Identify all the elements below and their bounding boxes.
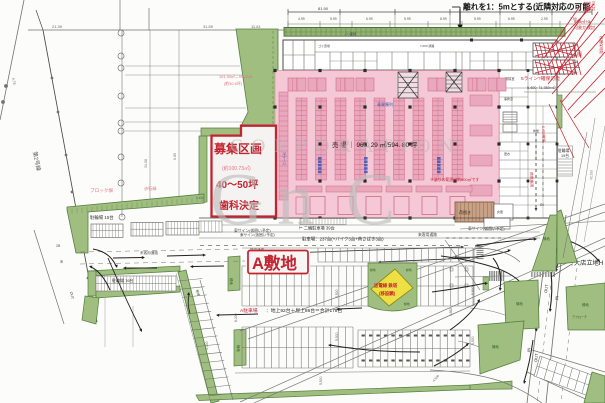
svg-text:荷捌車両: 荷捌車両 xyxy=(529,172,535,188)
svg-text:緑地: 緑地 xyxy=(582,302,589,307)
svg-text:荷捌き: 荷捌き xyxy=(459,209,471,215)
svg-text:2.99: 2.99 xyxy=(541,17,548,21)
svg-text:4,500: 4,500 xyxy=(449,308,453,316)
svg-text:5.99: 5.99 xyxy=(474,17,481,21)
svg-text:緑地: 緑地 xyxy=(370,268,376,272)
svg-text:IN: IN xyxy=(526,347,531,352)
svg-text:6.85: 6.85 xyxy=(173,153,177,160)
svg-text:休憩: 休憩 xyxy=(533,128,539,133)
svg-text:5,400（1,350×4）: 5,400（1,350×4） xyxy=(527,85,558,90)
svg-text:核確保可能: 核確保可能 xyxy=(599,36,604,54)
svg-text:風除室: 風除室 xyxy=(505,76,515,81)
svg-text:5,500: 5,500 xyxy=(471,286,475,295)
svg-text:81.90: 81.90 xyxy=(318,6,329,11)
svg-text:12,150: 12,150 xyxy=(589,170,594,180)
svg-text:6.99: 6.99 xyxy=(508,17,515,21)
svg-text:離れを1：5mとする(近隣対応の可能: 離れを1：5mとする(近隣対応の可能 xyxy=(463,2,590,12)
svg-text:5.99: 5.99 xyxy=(330,17,337,21)
svg-text:来客用通路: 来客用通路 xyxy=(140,250,158,255)
svg-text:6,480: 6,480 xyxy=(196,196,204,200)
svg-text:更衣: 更衣 xyxy=(504,151,510,156)
svg-text:5,500: 5,500 xyxy=(471,336,475,345)
svg-text:緑地: 緑地 xyxy=(543,236,550,241)
svg-text:送電線 鉄塔: 送電線 鉄塔 xyxy=(373,282,398,289)
svg-text:2B: 2B xyxy=(56,244,61,248)
svg-text:7,000 通路: 7,000 通路 xyxy=(420,43,434,48)
svg-text:19台: 19台 xyxy=(561,153,569,158)
svg-text:5ライン?確保可能: 5ライン?確保可能 xyxy=(521,75,560,82)
svg-text:101.30㎡→99.20㎡: 101.30㎡→99.20㎡ xyxy=(219,74,252,79)
svg-text:緑地: 緑地 xyxy=(236,345,241,352)
svg-text:駐輪場 76台: 駐輪場 76台 xyxy=(112,277,134,283)
svg-text:事務室: 事務室 xyxy=(504,96,513,101)
svg-text:緑地: 緑地 xyxy=(406,268,412,272)
svg-text:A駐車場: A駐車場 xyxy=(240,307,258,314)
svg-text:対応可: 対応可 xyxy=(584,1,596,6)
svg-text:4.99: 4.99 xyxy=(298,17,305,21)
svg-text:ノリ面緑: ノリ面緑 xyxy=(344,31,356,36)
svg-text:青果陳列: 青果陳列 xyxy=(377,101,393,107)
svg-text:緑地: 緑地 xyxy=(492,344,499,349)
svg-text:(約30.6坪): (約30.6坪) xyxy=(224,81,243,86)
svg-text:888㎡+α: 888㎡+α xyxy=(574,18,591,24)
svg-text:緑地: 緑地 xyxy=(404,302,410,306)
svg-text:※塗りの範囲は約600㎡です: ※塗りの範囲は約600㎡です xyxy=(430,177,479,182)
svg-text:来客用通路: 来客用通路 xyxy=(418,232,437,237)
svg-text:可能か検討: 可能か検討 xyxy=(574,24,595,31)
svg-text:G: G xyxy=(210,159,263,241)
svg-text:CORPORATION: CORPORATION xyxy=(230,136,462,157)
svg-text:IN: IN xyxy=(540,203,544,207)
svg-text:ゴミ置場: ゴミ置場 xyxy=(318,43,330,48)
svg-text:(移設願): (移設願) xyxy=(379,290,396,297)
svg-text:A敷地: A敷地 xyxy=(252,253,297,273)
svg-text:駐輪場 15台: 駐輪場 15台 xyxy=(90,214,114,221)
svg-text:アプローチ: アプローチ xyxy=(572,314,587,319)
svg-text:5,400確保: 5,400確保 xyxy=(541,126,547,143)
svg-text:歩行縁: 歩行縁 xyxy=(144,185,157,192)
svg-text:駐輪場: 駐輪場 xyxy=(558,148,570,153)
svg-text:31.59: 31.59 xyxy=(203,24,214,29)
svg-text:要検討: 要検討 xyxy=(584,6,596,11)
svg-text:緑地: 緑地 xyxy=(516,301,523,306)
svg-text:倉庫: 倉庫 xyxy=(497,209,503,214)
svg-text:6.99: 6.99 xyxy=(366,17,373,21)
svg-text:5,500: 5,500 xyxy=(335,332,339,341)
svg-text:n: n xyxy=(277,159,314,241)
svg-text:IN: IN xyxy=(554,295,559,300)
svg-text:5,500: 5,500 xyxy=(319,376,323,385)
svg-text:31.08: 31.08 xyxy=(144,159,148,168)
svg-text:21.39: 21.39 xyxy=(52,24,63,29)
svg-text:5.99: 5.99 xyxy=(404,17,411,21)
svg-text:8.99: 8.99 xyxy=(440,17,447,21)
svg-text:ブロック塀: ブロック塀 xyxy=(90,187,113,194)
svg-text:11.81: 11.81 xyxy=(251,24,261,29)
svg-text:緑地: 緑地 xyxy=(229,278,234,285)
svg-text:：地上92台＋屋上86台＝合計178台: ：地上92台＋屋上86台＝合計178台 xyxy=(266,307,342,314)
svg-text:6,000: 6,000 xyxy=(234,313,238,322)
svg-text:檀: 檀 xyxy=(577,51,582,58)
svg-text:C: C xyxy=(346,159,395,241)
